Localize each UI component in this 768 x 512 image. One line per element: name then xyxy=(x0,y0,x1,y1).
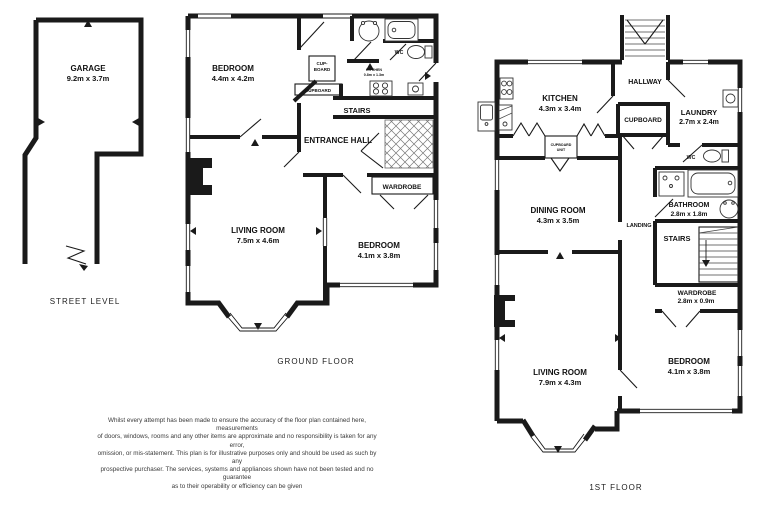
floor-plan-canvas: GARAGE 9.2m x 3.7m STREET LEVEL xyxy=(0,0,768,512)
label-wardrobe: WARDROBE xyxy=(678,290,717,297)
room-dims-dining: 4.3m x 3.5m xyxy=(537,216,580,225)
cupboard-doors xyxy=(622,135,664,149)
label-cupboard: CUPBOARD xyxy=(305,88,332,93)
garage-plan: GARAGE 9.2m x 3.7m STREET LEVEL xyxy=(25,20,141,306)
label-cupboard: CUPBOARD xyxy=(624,117,662,124)
side-door-arrow xyxy=(425,72,431,80)
room-dims-living: 7.5m x 4.6m xyxy=(237,236,280,245)
disclaimer-line: prospective purchaser. The services, sys… xyxy=(92,466,382,482)
room-label-bedroom2: BEDROOM xyxy=(358,241,400,250)
room-dims-bedroom1: 4.4m x 4.2m xyxy=(212,74,255,83)
label-landing: LANDING xyxy=(626,223,651,229)
disclaimer-line: omission, or mis-statement. This plan is… xyxy=(92,450,382,466)
garage-arrow-left xyxy=(38,118,45,126)
room-label-living: LIVING ROOM xyxy=(231,226,285,235)
oven-icon xyxy=(408,83,423,95)
bifold-doors xyxy=(513,123,605,136)
dims-wardrobe: 2.8m x 0.9m xyxy=(678,298,715,305)
door-leaf xyxy=(668,80,685,97)
label-wc: WC xyxy=(687,155,696,161)
door-leaf xyxy=(354,42,371,60)
door-leaf xyxy=(620,370,637,388)
label-kitchenette: KITCHEN xyxy=(366,68,382,72)
garage-dims: 9.2m x 3.7m xyxy=(67,74,110,83)
door-leaf xyxy=(240,119,261,137)
bath-icon xyxy=(688,170,738,197)
room-dims-bedroom: 4.1m x 3.8m xyxy=(668,367,711,376)
hob-icon xyxy=(370,81,392,96)
label-cupboard-unit-1: CUPBOARD xyxy=(551,143,572,147)
wardrobe-doors xyxy=(662,311,700,327)
label-cupboard-small-2: BOARD xyxy=(314,67,331,72)
room-dims-laundry: 2.7m x 2.4m xyxy=(679,119,719,126)
sink-unit-icon xyxy=(478,102,512,131)
label-cupboard-unit-2: UNIT xyxy=(557,148,566,152)
bay-window xyxy=(227,313,289,331)
door-leaf xyxy=(300,22,324,48)
washer-icon xyxy=(723,90,738,107)
label-stairs: STAIRS xyxy=(664,234,691,243)
door-arrow xyxy=(556,252,564,259)
window xyxy=(322,218,328,246)
room-label-bathroom: BATHROOM xyxy=(669,202,710,209)
door-arrow xyxy=(251,139,259,146)
room-label-kitchen: KITCHEN xyxy=(542,94,578,103)
basin-icon xyxy=(720,200,738,218)
ground-floor-caption: GROUND FLOOR xyxy=(277,357,354,366)
window xyxy=(340,282,413,288)
external-staircase-icon xyxy=(622,15,668,60)
first-floor-plan: KITCHEN 4.3m x 3.4m HALLWAY LAUNDRY 2.7m… xyxy=(478,15,743,492)
room-label-laundry: LAUNDRY xyxy=(681,108,717,117)
first-floor-caption: 1ST FLOOR xyxy=(589,483,642,492)
label-stairs: STAIRS xyxy=(344,106,371,115)
room-label-dining: DINING ROOM xyxy=(530,206,585,215)
sink-icon xyxy=(659,172,684,196)
bay-window xyxy=(531,434,587,453)
garage-arrow-right xyxy=(132,118,139,126)
porch-hatch xyxy=(385,120,433,168)
toilet-icon xyxy=(408,46,433,59)
label-hallway: HALLWAY xyxy=(628,79,662,86)
room-dims-bedroom2: 4.1m x 3.8m xyxy=(358,251,401,260)
room-label-bedroom: BEDROOM xyxy=(668,357,710,366)
room-dims-kitchen: 4.3m x 3.4m xyxy=(539,104,582,113)
door-leaf xyxy=(284,152,299,167)
fireplace-icon xyxy=(494,295,515,327)
cupboard-unit-box xyxy=(545,136,577,158)
room-dims-bathroom: 2.8m x 1.8m xyxy=(671,211,708,218)
slope-arrow-icon xyxy=(66,246,88,271)
ground-floor-plan: BEDROOM 4.4m x 4.2m CUP- BOARD CUPBOARD … xyxy=(185,13,439,366)
room-label-living: LIVING ROOM xyxy=(533,368,587,377)
toilet-icon xyxy=(704,150,729,162)
label-wc: WC xyxy=(395,50,404,56)
label-wardrobe: WARDROBE xyxy=(383,184,422,191)
staircase-icon xyxy=(699,227,738,282)
sight-arrow-right xyxy=(316,227,322,235)
disclaimer-line: of doors, windows, rooms and any other i… xyxy=(92,433,382,449)
room-label-bedroom1: BEDROOM xyxy=(212,64,254,73)
disclaimer: Whilst every attempt has been made to en… xyxy=(92,417,382,491)
fireplace-icon xyxy=(190,158,212,195)
bath-icon xyxy=(385,19,418,41)
disclaimer-line: Whilst every attempt has been made to en… xyxy=(92,417,382,433)
wardrobe-doors xyxy=(380,195,428,209)
hob-icon xyxy=(500,78,513,99)
garage-label: GARAGE xyxy=(70,64,106,73)
label-entrance-hall: ENTRANCE HALL xyxy=(304,136,372,145)
door-leaves xyxy=(551,158,569,171)
disclaimer-line: as to their operability or efficiency ca… xyxy=(92,483,382,491)
label-cupboard-small-1: CUP- xyxy=(317,61,329,66)
room-dims-living: 7.9m x 4.3m xyxy=(539,378,582,387)
door-leaf xyxy=(343,175,361,193)
dims-kitchenette: 0.8m x 1.3m xyxy=(364,73,384,77)
street-level-caption: STREET LEVEL xyxy=(50,297,121,306)
door-leaf xyxy=(597,96,613,113)
sink-icon xyxy=(359,21,379,41)
